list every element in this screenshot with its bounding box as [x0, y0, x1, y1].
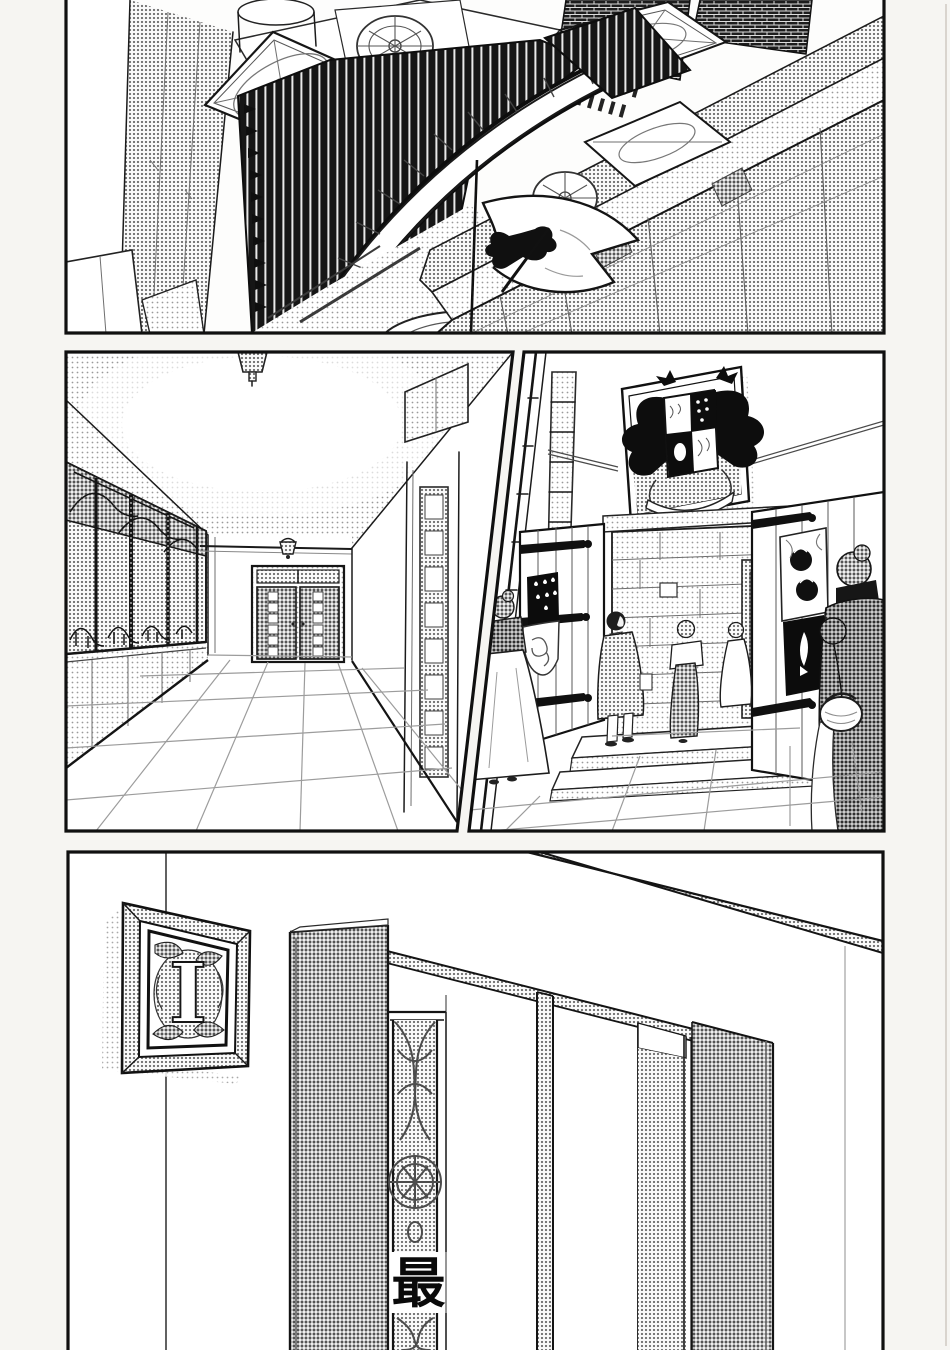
letter-plaque: I: [102, 903, 250, 1084]
panel-aerial-view: [66, 0, 884, 383]
panel-entrance-hall: [469, 352, 884, 831]
corridor-door: [252, 566, 344, 662]
dark-pillar: [290, 919, 388, 1350]
manga-page: 最 I: [0, 0, 950, 1350]
plaque-letter: I: [169, 946, 207, 1042]
door-plaque-birds: [780, 528, 828, 621]
wall-sign: [660, 583, 677, 597]
manga-art: 最 I: [0, 0, 950, 1350]
crest-shield: [664, 390, 718, 477]
gray-wall: [692, 1022, 773, 1350]
panel-corridor: [66, 332, 513, 831]
heraldic-crest: [622, 366, 764, 529]
basket: [820, 697, 862, 731]
caption-char: 最: [392, 1252, 446, 1315]
panel-plaque-closeup: 最 I: [68, 852, 883, 1350]
far-wall: [200, 535, 352, 662]
satchel: [640, 674, 652, 690]
